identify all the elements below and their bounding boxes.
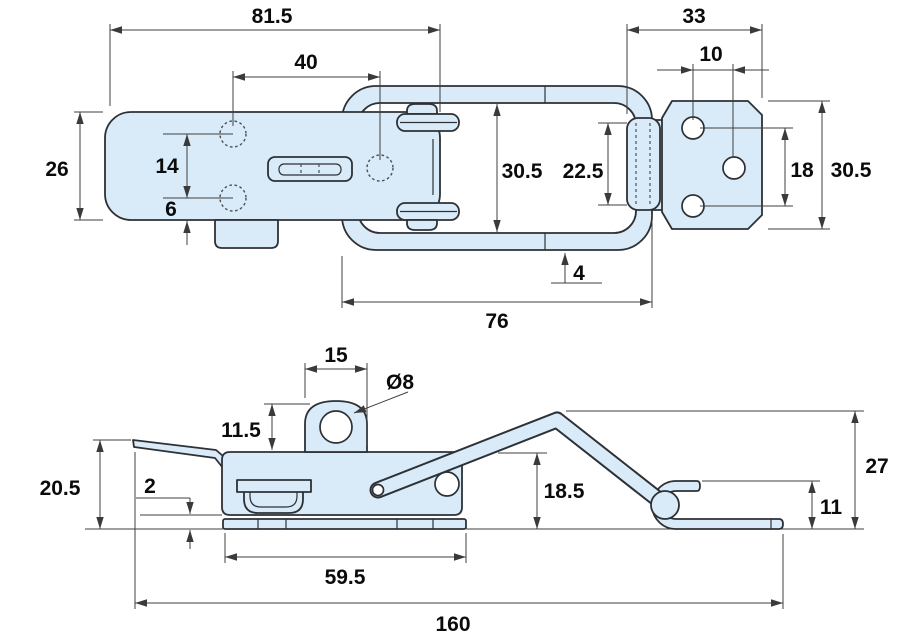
dim-overall-length: 160 (435, 613, 470, 636)
leaf-spring (133, 440, 223, 468)
dim-catch-section-width: 33 (682, 5, 705, 28)
dim-base-length: 59.5 (325, 566, 366, 589)
dim-hook-lip-height: 11 (820, 496, 843, 519)
top-view (105, 86, 762, 250)
dim-lug-width: 15 (324, 344, 348, 367)
dim-lug-hole-diameter: Ø8 (386, 371, 414, 394)
dim-catch-hole-vertical-pitch: 18 (790, 159, 814, 182)
dim-hole-spacing: 14 (155, 155, 179, 178)
pivot-hole (435, 472, 459, 496)
dim-catch-hole-pitch: 10 (699, 43, 722, 66)
base-strip (223, 519, 466, 529)
lever-pivot-curl (373, 485, 384, 496)
hinge-knuckle-bottom (397, 203, 459, 230)
dim-loop-inner-width: 30.5 (502, 160, 543, 183)
technical-drawing-canvas: 81.5 40 33 10 26 14 6 30.5 (0, 0, 900, 642)
dim-lug-height: 11.5 (221, 419, 261, 442)
dim-hook-length: 22.5 (563, 160, 604, 183)
latch-body-side (222, 452, 462, 515)
dim-wire-thickness: 4 (573, 262, 585, 285)
dim-body-height: 18.5 (544, 480, 585, 503)
hook-sleeve (627, 118, 660, 210)
side-view (85, 401, 864, 529)
dim-hole-to-edge: 6 (165, 198, 177, 221)
lever-grip-ball (651, 491, 679, 519)
lug-hole (320, 411, 352, 443)
dim-front-height: 20.5 (40, 477, 81, 500)
dim-loop-length: 76 (485, 310, 508, 333)
dim-catch-plate-height: 30.5 (831, 159, 872, 182)
dim-plate-height: 26 (45, 158, 68, 181)
dim-lever-peak-height: 27 (865, 455, 888, 478)
dim-overall-width-top: 81.5 (252, 5, 293, 28)
dim-hole-pitch: 40 (294, 51, 317, 74)
catch-plate-top (662, 101, 762, 229)
catch-hole-2 (723, 157, 745, 179)
plate-tab (215, 220, 278, 248)
dim-plate-thickness: 2 (144, 475, 156, 498)
hinge-knuckle-top (397, 104, 459, 131)
